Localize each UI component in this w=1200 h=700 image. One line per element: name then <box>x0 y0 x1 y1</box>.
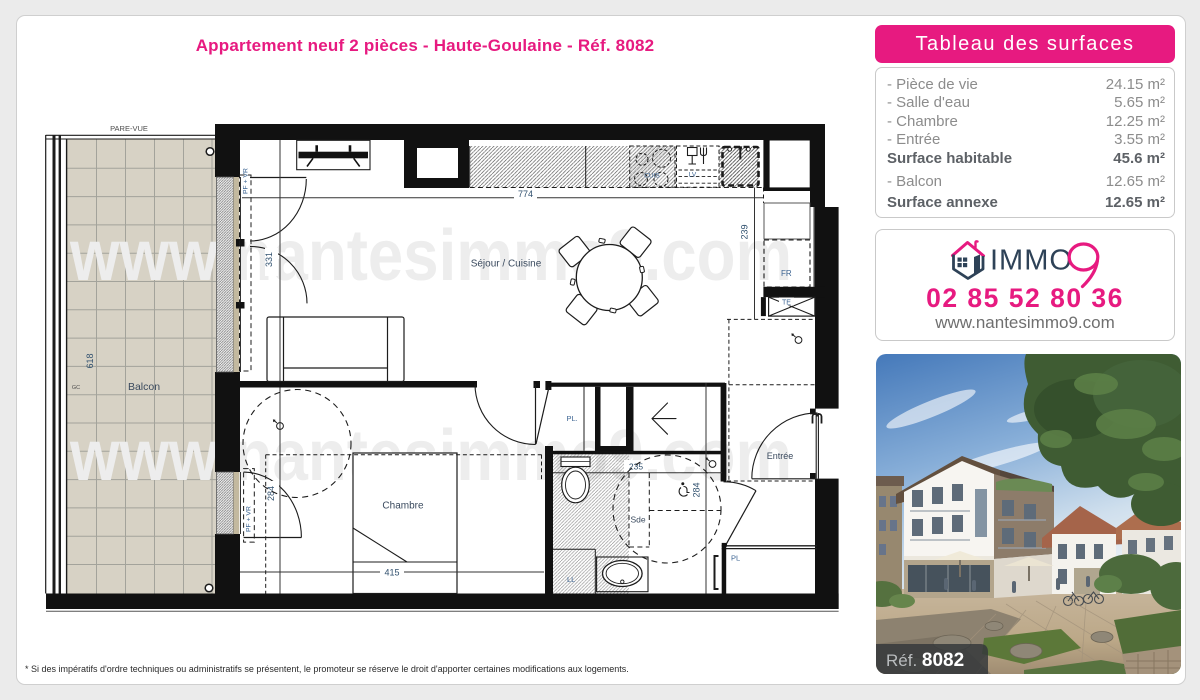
svg-text:PF + VR: PF + VR <box>246 506 253 532</box>
svg-text:GC: GC <box>72 385 80 391</box>
svg-text:618: 618 <box>85 353 95 368</box>
svg-text:239: 239 <box>740 224 750 239</box>
svg-text:Balcon: Balcon <box>128 381 160 393</box>
svg-text:331: 331 <box>264 252 274 267</box>
svg-text:TE: TE <box>782 300 791 307</box>
svg-text:284: 284 <box>692 482 702 497</box>
svg-text:235: 235 <box>629 462 643 472</box>
svg-text:Sde: Sde <box>630 515 645 525</box>
svg-text:www.nantesimmo9.com: www.nantesimmo9.com <box>69 216 792 296</box>
svg-text:PARE-VUE: PARE-VUE <box>110 124 148 133</box>
svg-text:774: 774 <box>518 189 533 199</box>
svg-text:LV: LV <box>689 172 697 179</box>
svg-text:PF + VR: PF + VR <box>243 168 250 194</box>
svg-text:LL: LL <box>567 575 575 584</box>
svg-text:Séjour / Cuisine: Séjour / Cuisine <box>471 259 542 270</box>
svg-text:PL: PL <box>731 554 740 563</box>
svg-text:415: 415 <box>384 568 399 578</box>
svg-text:Chambre: Chambre <box>382 501 424 512</box>
svg-text:Réf. 8082: Réf. 8082 <box>886 650 964 671</box>
svg-text:CUIS: CUIS <box>644 173 660 180</box>
svg-text:PL.: PL. <box>567 414 578 423</box>
svg-text:Entrée: Entrée <box>767 451 794 461</box>
svg-text:FR: FR <box>781 269 792 278</box>
